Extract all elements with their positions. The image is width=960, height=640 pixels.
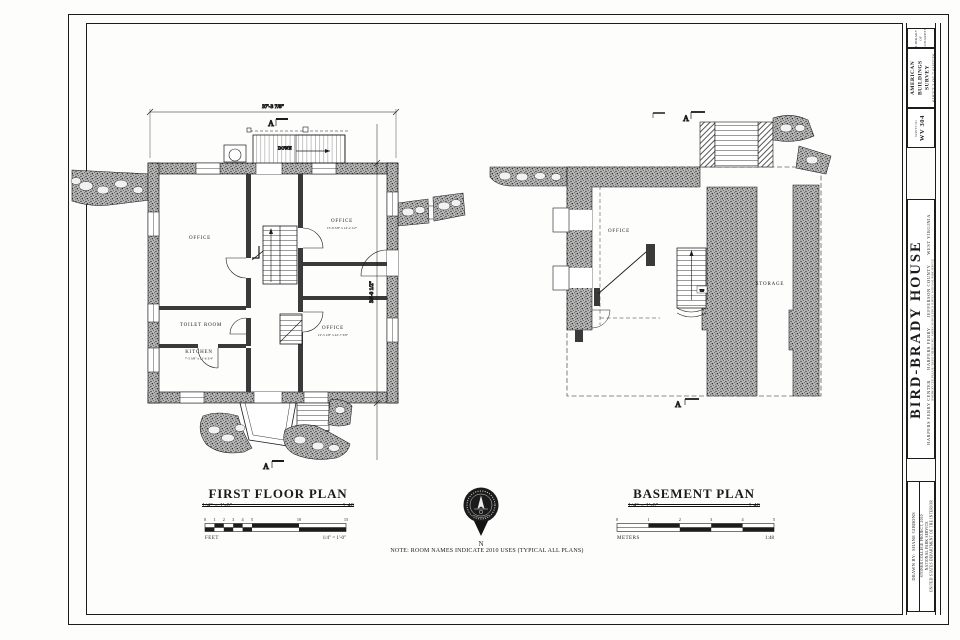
feet-scale-bar: 0 1 2 3 4 5 10 15 FEET 1/4" = 1'-0": [204, 517, 348, 541]
svg-text:5: 5: [773, 517, 775, 522]
basement-plan: UP A A OFFICE STORAGE: [490, 112, 831, 409]
porch: DOWN: [224, 127, 348, 163]
stone-garden-wall-east: [398, 193, 465, 226]
stone-wall-west-basement: [490, 167, 567, 186]
svg-text:A: A: [675, 400, 681, 409]
north-arrow-emblem: N: [464, 488, 499, 549]
north-label: N: [478, 540, 483, 548]
corner-line-1: LIBRARY OF: [914, 28, 923, 48]
sheet-number: SHEET 2 OF 7 SHEETS: [932, 49, 935, 107]
label-office-ne: OFFICE: [331, 219, 353, 224]
cistern-box: [224, 145, 246, 162]
svg-text:4: 4: [242, 517, 245, 522]
drawn-by: DRAWN BY: SHANE GIBBONS: [911, 512, 916, 581]
survey-name-line1: HISTORIC AMERICAN: [907, 49, 918, 107]
label-toilet-room: TOILET ROOM: [180, 323, 222, 328]
dim-overall-width: 37'-3 7/8": [262, 104, 284, 110]
title-strip: LIBRARY OF CONGRESS HISTORIC AMERICAN BU…: [906, 23, 936, 615]
dim-overall-depth: 34'-0 1/2": [369, 281, 375, 303]
feet-scale-note: 1/4" = 1'-0": [323, 536, 346, 541]
svg-text:A: A: [268, 119, 274, 128]
first-floor-scale-imperial: 1/4" = 1'-0": [202, 503, 232, 509]
svg-text:1: 1: [213, 517, 215, 522]
svg-text:2: 2: [223, 517, 225, 522]
reproduction-credit: IF REPRODUCED, PLEASE CREDIT THE HISTORI…: [931, 214, 935, 445]
label-office-se: OFFICE: [322, 326, 344, 331]
meters-scale-note: 1:48: [765, 536, 774, 541]
basement-scale-row: 1/4" = 1'-0" 1:48: [628, 503, 760, 509]
survey-name-box: HISTORIC AMERICAN BUILDINGS SURVEY SHEET…: [907, 48, 935, 108]
north-pointer: [474, 521, 488, 536]
svg-text:0: 0: [204, 517, 206, 522]
first-floor-scale-ratio: 1:48: [343, 503, 354, 509]
stair-up-label: UP: [700, 289, 705, 293]
structure-name: BIRD-BRADY HOUSE: [907, 214, 926, 445]
svg-text:15: 15: [344, 517, 348, 522]
label-storage: STORAGE: [756, 282, 785, 287]
survey-name-line2: BUILDINGS SURVEY: [918, 49, 932, 107]
label-office-se-dims: 12'-5 1/8" x 22'-7 3/8": [318, 333, 349, 337]
porch-down-label: DOWN: [278, 146, 292, 151]
corner-box: LIBRARY OF CONGRESS: [907, 28, 935, 48]
survey-number-box: SURVEY NO. WV 304: [907, 108, 935, 148]
stone-garden-wall-west: [71, 170, 150, 205]
survey-number: WV 304: [919, 115, 927, 141]
feet-unit-label: FEET: [205, 536, 219, 541]
label-kitchen-dims: 7'-5 3/8" x 11'-6 3/4": [185, 357, 214, 361]
basement-scale-ratio: 1:48: [749, 503, 760, 509]
svg-text:3: 3: [710, 517, 712, 522]
basement-stair: UP: [677, 248, 707, 317]
label-kitchen: KITCHEN: [185, 350, 213, 355]
svg-text:0: 0: [616, 517, 618, 522]
project-line-3: UNITED STATES DEPARTMENT OF THE INTERIOR: [930, 500, 935, 592]
first-floor-scale-row: 1/4" = 1'-0" 1:48: [202, 503, 354, 509]
svg-text:5: 5: [251, 517, 253, 522]
svg-text:A: A: [683, 114, 689, 123]
room-names-note: NOTE: ROOM NAMES INDICATE 2010 USES (TYP…: [300, 548, 674, 554]
main-stair: [263, 226, 297, 284]
credits-box: DRAWN BY: SHANE GIBBONS STONER COLLEGE P…: [907, 481, 935, 612]
label-basement-office: OFFICE: [608, 229, 630, 234]
svg-text:4: 4: [742, 517, 745, 522]
meters-unit-label: METERS: [617, 536, 640, 541]
svg-text:2: 2: [679, 517, 681, 522]
first-floor-plan: DOWN 37'-3 7/8": [71, 104, 465, 471]
svg-text:1: 1: [647, 517, 649, 522]
cellar-stair: [280, 314, 302, 344]
drawing-canvas: DOWN 37'-3 7/8": [0, 0, 960, 640]
svg-text:3: 3: [232, 517, 234, 522]
basement-scale-imperial: 1/4" = 1'-0": [628, 503, 658, 509]
corner-line-2: CONGRESS: [923, 28, 928, 48]
label-office-nw: OFFICE: [189, 236, 211, 241]
svg-text:10: 10: [297, 517, 301, 522]
structure-title-box: BIRD-BRADY HOUSE HARPERS FERRY CENTER HA…: [907, 199, 935, 459]
areaway: [700, 115, 831, 174]
meters-scale-bar: 0 1 2 3 4 5 METERS 1:48: [616, 517, 775, 541]
svg-text:A: A: [263, 462, 269, 471]
rear-bay: [200, 400, 352, 460]
label-office-ne-dims: 13'-9 5/8" x 14'-2 1/2": [327, 226, 358, 230]
